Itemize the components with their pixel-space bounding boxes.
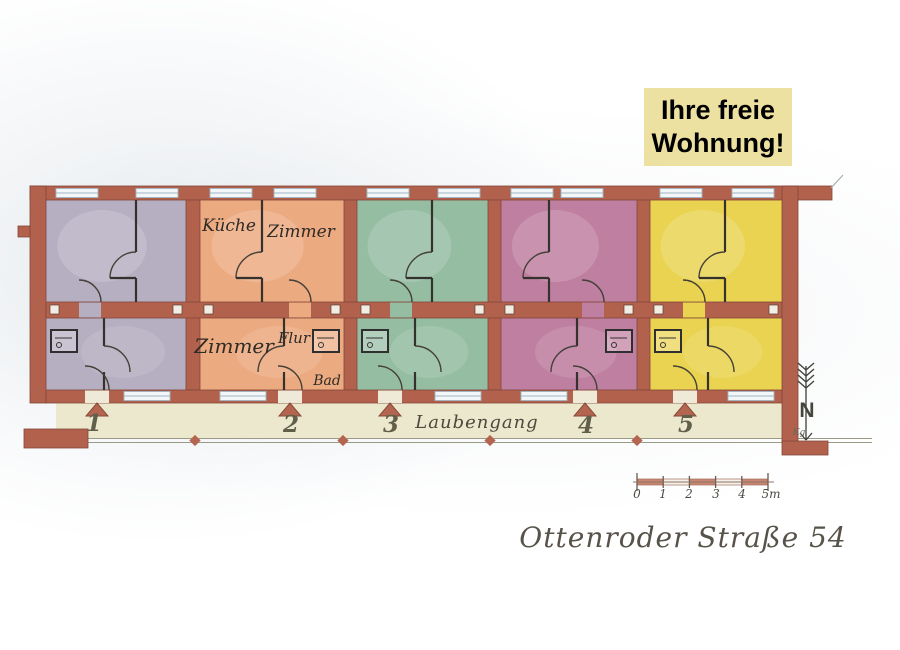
author-initials: Kg	[793, 428, 806, 438]
street-address: Ottenroder Straße 54	[519, 521, 846, 554]
apartment-number-1: 1	[86, 410, 102, 437]
scale-bar	[633, 473, 774, 491]
label-room-upper: Zimmer	[267, 222, 335, 242]
apartment-number-5: 5	[678, 411, 694, 438]
apartment-3-floor	[357, 200, 488, 390]
banner-line1: Ihre freie	[661, 94, 775, 127]
label-hallway: Flur	[278, 329, 310, 347]
label-walkway: Laubengang	[415, 412, 538, 433]
apartment-4-floor	[501, 200, 637, 390]
banner-line2: Wohnung!	[652, 127, 785, 160]
scale-tick-0: 0	[633, 487, 641, 501]
apartment-number-3: 3	[383, 411, 399, 438]
scale-tick-2: 2	[685, 487, 693, 501]
scale-tick-3: 3	[712, 487, 720, 501]
apartment-5-floor	[650, 200, 782, 390]
apartment-number-2: 2	[283, 411, 299, 438]
label-kitchen: Küche	[202, 216, 256, 236]
scale-tick-4: 4	[738, 487, 746, 501]
north-arrow-label: N	[799, 399, 814, 423]
scale-tick-1: 1	[659, 487, 667, 501]
free-apartment-banner: Ihre freie Wohnung!	[644, 88, 792, 166]
apartment-number-4: 4	[578, 412, 594, 439]
label-bathroom: Bad	[313, 373, 341, 389]
apartment-1-floor	[46, 200, 186, 390]
scanned-floor-plan-page: Ihre freie Wohnung! Küche Zimmer Zimmer …	[0, 0, 900, 650]
scale-tick-5: 5m	[761, 487, 780, 501]
label-room-lower: Zimmer	[194, 334, 274, 358]
